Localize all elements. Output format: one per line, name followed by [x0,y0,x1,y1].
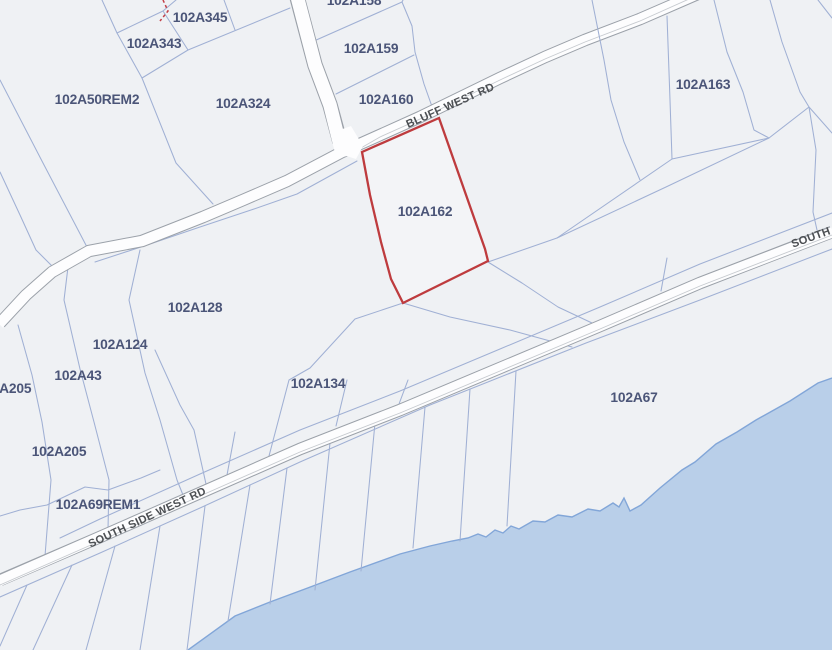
svg-text:102A162: 102A162 [398,204,453,219]
svg-text:102A345: 102A345 [173,10,228,25]
svg-text:102A205: 102A205 [0,381,32,396]
svg-text:102A160: 102A160 [359,92,414,107]
svg-text:102A159: 102A159 [344,41,399,56]
svg-text:102A134: 102A134 [291,376,346,391]
svg-text:102A67: 102A67 [610,390,658,405]
svg-text:102A205: 102A205 [32,444,87,459]
svg-text:102A128: 102A128 [168,300,223,315]
svg-text:102A163: 102A163 [676,77,731,92]
svg-text:102A69REM1: 102A69REM1 [56,497,141,512]
svg-text:102A158: 102A158 [327,0,382,8]
svg-text:102A43: 102A43 [54,368,102,383]
svg-text:102A343: 102A343 [127,36,182,51]
svg-text:102A50REM2: 102A50REM2 [55,92,140,107]
svg-text:102A324: 102A324 [216,96,271,111]
svg-text:102A124: 102A124 [93,337,148,352]
